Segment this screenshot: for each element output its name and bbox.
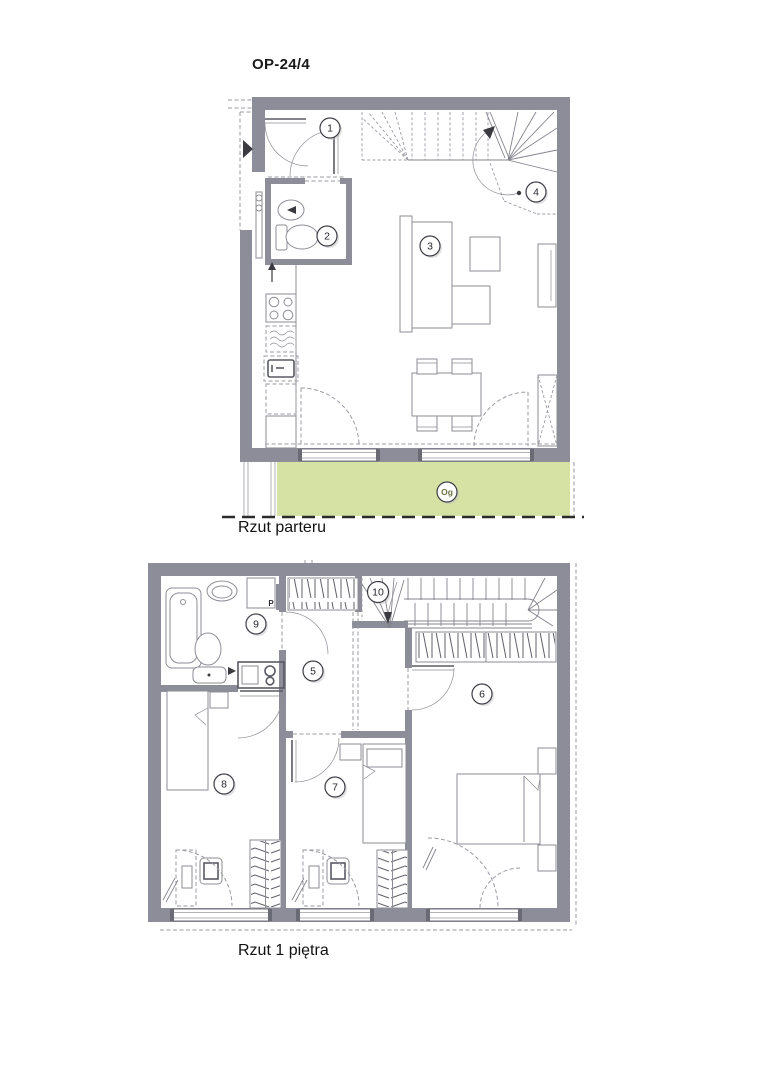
terrace-doors [265,388,557,446]
svg-text:Og: Og [441,487,453,497]
entrance-arrow-icon [243,140,253,158]
svg-text:6: 6 [479,689,485,701]
room-marker-1: 1 [320,118,342,140]
svg-text:5: 5 [310,666,316,678]
wardrobe-ground [538,375,557,446]
room-marker-8: 8 [214,774,236,796]
dining-table-icon [412,373,481,416]
kitchen [264,262,298,448]
room-marker-4: 4 [526,182,548,204]
room-marker-9: 9 [246,614,268,636]
terrace [222,462,584,518]
dining-set [412,359,481,431]
svg-text:2: 2 [324,231,330,243]
floor-plans-canvas: 1 2 3 4 Og [0,0,777,1080]
toilet-icon [276,225,287,250]
nightstand-icon [210,692,228,708]
ground-floor-plan: 1 2 3 4 Og [222,97,584,518]
bedroom8-furniture [163,691,281,908]
nightstand-icon [538,748,556,774]
first-floor-doors [238,666,454,782]
armchair-icon [470,237,500,271]
room-marker-7: 7 [325,777,347,799]
first-windows [170,909,522,921]
bedroom6-wardrobe [416,632,556,662]
bed-icon [363,744,406,843]
bed-icon [167,691,208,790]
svg-text:4: 4 [533,187,539,199]
svg-text:1: 1 [327,123,333,135]
svg-text:7: 7 [332,782,338,794]
room-marker-5: 5 [303,661,325,683]
svg-text:9: 9 [253,619,259,631]
double-bed-icon [457,774,540,844]
first-floor-caption: Rzut 1 piętra [238,942,329,960]
room-marker-10: 10 [368,582,391,605]
staircase-first [362,578,557,628]
nightstand-icon [538,845,556,871]
tv-cabinet-icon [538,244,556,307]
room-marker-6: 6 [472,684,494,706]
bedroom7-furniture [292,744,408,908]
desk-icon [303,850,323,906]
bedroom6-furniture [423,748,556,908]
sofa-icon [400,216,412,332]
room-marker-2: 2 [317,226,339,248]
first-floor-plan: P [148,560,576,930]
svg-text:10: 10 [372,587,384,599]
toilet-icon [195,633,221,665]
living-room-furniture [400,216,556,332]
wc-ground [256,178,352,265]
desk-icon [176,850,196,906]
svg-text:8: 8 [221,779,227,791]
svg-text:3: 3 [427,241,433,253]
washer-label: P [268,599,274,608]
hall-wardrobe [288,578,358,730]
ground-floor-caption: Rzut parteru [238,519,326,537]
staircase-ground [362,112,557,214]
nightstand-icon [340,744,361,760]
